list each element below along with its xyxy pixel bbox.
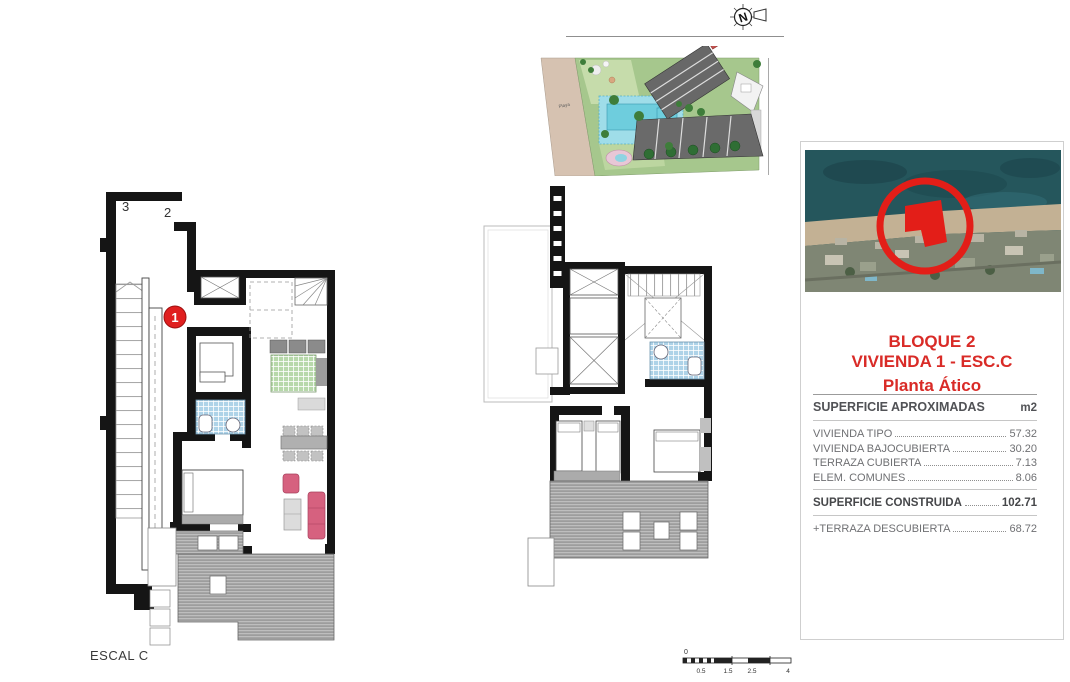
dot-leader (953, 522, 1006, 532)
duct-box (536, 348, 558, 374)
surface-unit-label: m2 (1020, 402, 1037, 414)
bedroom (182, 470, 243, 524)
row-value: 30.20 (1009, 442, 1037, 457)
panel-title-unit: VIVIENDA 1 - ESC.C (801, 352, 1063, 372)
north-arrow-icon: N (727, 2, 769, 32)
bathroom (196, 400, 245, 434)
panel-title-floor: Planta Ático (801, 376, 1063, 396)
living-furniture (283, 474, 325, 539)
panel-title-block: BLOQUE 2 (801, 332, 1063, 352)
scale-zero: 0 (684, 649, 688, 656)
total-value: 102.71 (1002, 496, 1037, 511)
table-row: TERRAZA CUBIERTA 7.13 (813, 456, 1037, 471)
row-label: VIVIENDA TIPO (813, 427, 892, 442)
dot-leader (965, 496, 999, 506)
top-rule (566, 36, 784, 37)
elevator-shaft (201, 277, 239, 298)
info-panel: BLOQUE 2 VIVIENDA 1 - ESC.C Planta Ático… (800, 141, 1064, 640)
unit-number: 1 (171, 310, 178, 325)
surface-table: SUPERFICIE APROXIMADAS m2 VIVIENDA TIPO … (813, 394, 1037, 536)
scale-tick: 1.5 (723, 668, 732, 675)
row-value: 57.32 (1009, 427, 1037, 442)
row-label: TERRAZA CUBIERTA (813, 456, 921, 471)
plan-sheet: N Playa (0, 0, 1070, 682)
attic-stair (250, 278, 327, 338)
divider (813, 394, 1037, 395)
stair-label-3: 3 (122, 199, 129, 214)
row-label: ELEM. COMUNES (813, 471, 905, 486)
bathroom (650, 342, 704, 379)
row-value: 8.06 (1016, 471, 1037, 486)
extra-row: +TERRAZA DESCUBIERTA 68.72 (813, 522, 1037, 537)
dot-leader (924, 456, 1012, 466)
table-row: VIVIENDA BAJOCUBIERTA 30.20 (813, 442, 1037, 457)
divider (813, 420, 1037, 421)
elevator-shafts (570, 269, 618, 384)
surface-table-header: SUPERFICIE APROXIMADAS m2 (813, 397, 1037, 416)
divider (813, 515, 1037, 516)
dressing-room (200, 343, 233, 382)
site-plan: Playa (539, 46, 767, 176)
scale-bar: 0 0.5 1.5 2.5 4 (682, 644, 794, 676)
row-label: VIVIENDA BAJOCUBIERTA (813, 442, 950, 457)
dot-leader (953, 442, 1006, 452)
terrace-deck (148, 528, 334, 645)
green-bed-room (270, 340, 327, 410)
sheet-label: ESCAL C (90, 648, 149, 663)
row-value: 7.13 (1016, 456, 1037, 471)
location-photo (805, 150, 1061, 292)
stair-label-2: 2 (164, 205, 171, 220)
bedroom-right (654, 418, 711, 472)
scale-tick: 2.5 (747, 668, 756, 675)
buildings-lower-row (633, 114, 763, 160)
table-row: VIVIENDA TIPO 57.32 (813, 427, 1037, 442)
terrace-deck (528, 481, 708, 586)
stairwell (625, 274, 704, 340)
surface-header-label: SUPERFICIE APROXIMADAS (813, 400, 985, 414)
panel-titles: BLOQUE 2 VIVIENDA 1 - ESC.C Planta Ático (801, 332, 1063, 396)
bedroom-left (554, 421, 620, 481)
scale-tick: 0.5 (696, 668, 705, 675)
extra-value: 68.72 (1009, 522, 1037, 537)
divider (813, 489, 1037, 490)
total-row: SUPERFICIE CONSTRUIDA 102.71 (813, 496, 1037, 511)
table-row: ELEM. COMUNES 8.06 (813, 471, 1037, 486)
extra-label: +TERRAZA DESCUBIERTA (813, 522, 950, 537)
dot-leader (908, 471, 1012, 481)
dining-table (281, 426, 327, 461)
scale-tick: 4 (786, 668, 790, 675)
unit-1-badge: 1 (164, 306, 186, 328)
right-floor-plan (478, 180, 718, 642)
roof-terrace-outline (484, 226, 552, 402)
side-rule (768, 58, 769, 175)
total-label: SUPERFICIE CONSTRUIDA (813, 496, 962, 511)
left-floor-plan: 3 2 (98, 186, 346, 652)
dot-leader (895, 427, 1006, 437)
